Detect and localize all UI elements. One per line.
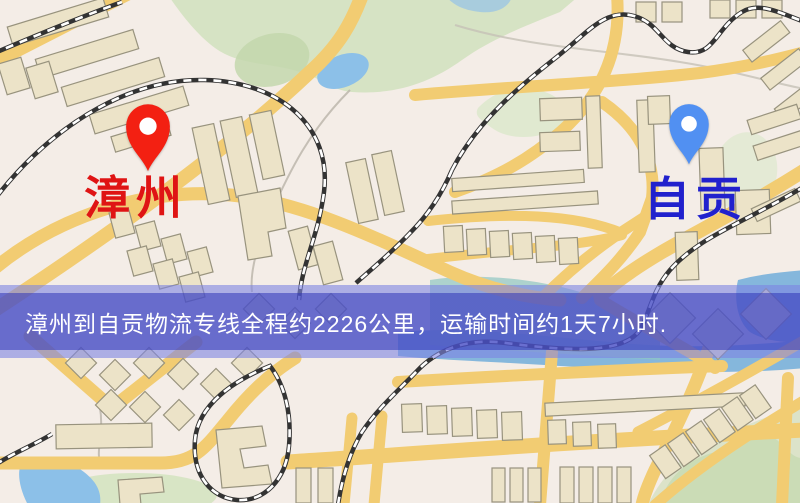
origin-marker	[119, 102, 177, 174]
destination-marker	[663, 102, 715, 167]
map-canvas: 漳州 自贡 漳州到自贡物流专线全程约2226公里，运输时间约1天7小时.	[0, 0, 800, 503]
destination-label: 自贡	[644, 177, 748, 223]
origin-pin-icon	[119, 102, 177, 174]
destination-pin-icon	[663, 102, 715, 167]
route-info-text: 漳州到自贡物流专线全程约2226公里，运输时间约1天7小时.	[0, 305, 667, 339]
origin-pin-hole	[139, 118, 156, 135]
map-background	[0, 0, 800, 503]
route-info-banner: 漳州到自贡物流专线全程约2226公里，运输时间约1天7小时.	[0, 285, 800, 358]
origin-pin-shape	[126, 104, 170, 171]
destination-pin-hole	[681, 116, 697, 132]
destination-pin-shape	[669, 104, 709, 164]
origin-label: 漳州	[84, 176, 188, 222]
